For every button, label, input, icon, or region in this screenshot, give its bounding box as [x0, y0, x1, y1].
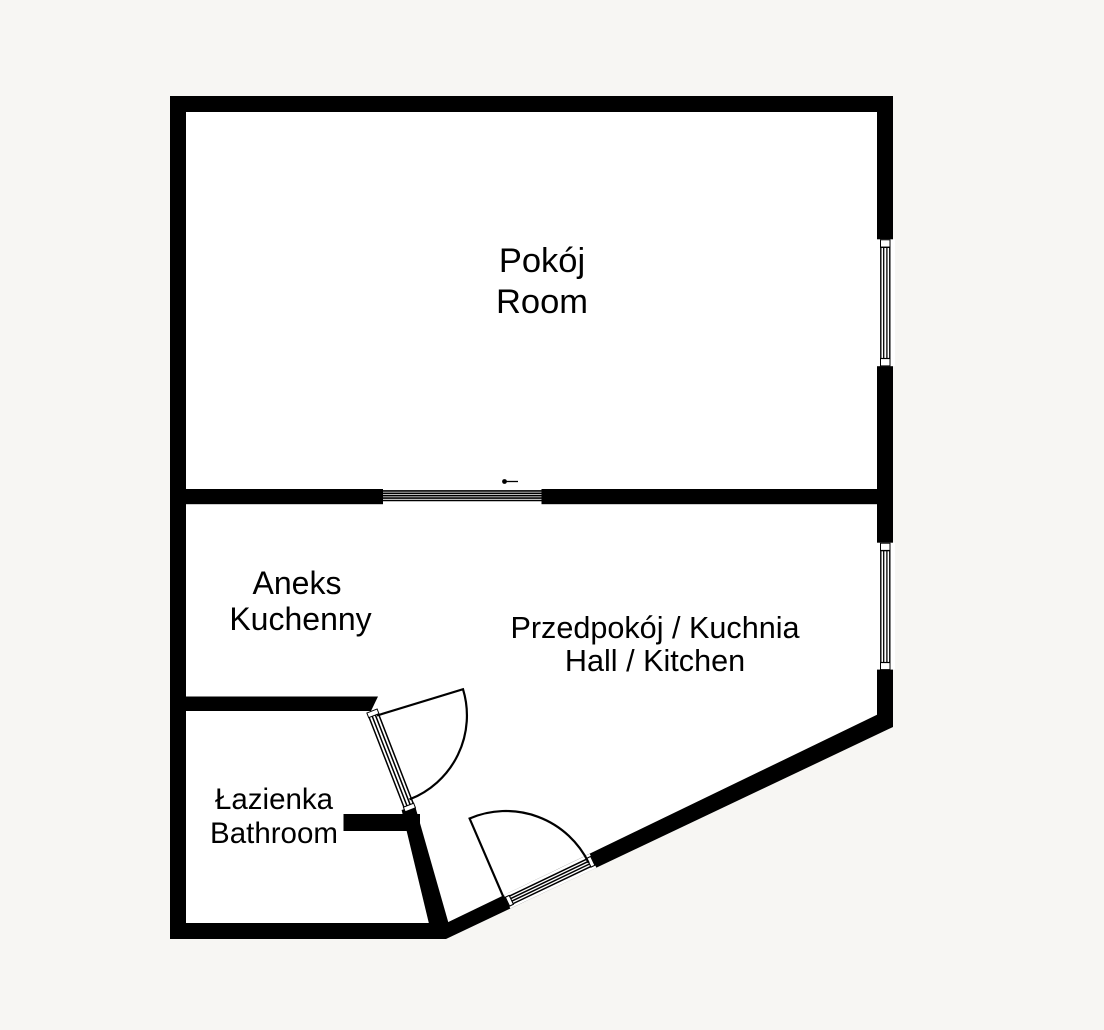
- svg-text:Pokój: Pokój: [499, 242, 585, 280]
- svg-text:Room: Room: [496, 283, 588, 321]
- svg-text:Bathroom: Bathroom: [210, 817, 338, 850]
- svg-text:Hall / Kitchen: Hall / Kitchen: [565, 644, 745, 678]
- svg-text:Przedpokój / Kuchnia: Przedpokój / Kuchnia: [510, 611, 800, 645]
- svg-text:Kuchenny: Kuchenny: [229, 601, 371, 637]
- svg-text:Aneks: Aneks: [253, 565, 342, 601]
- svg-text:Łazienka: Łazienka: [215, 783, 334, 816]
